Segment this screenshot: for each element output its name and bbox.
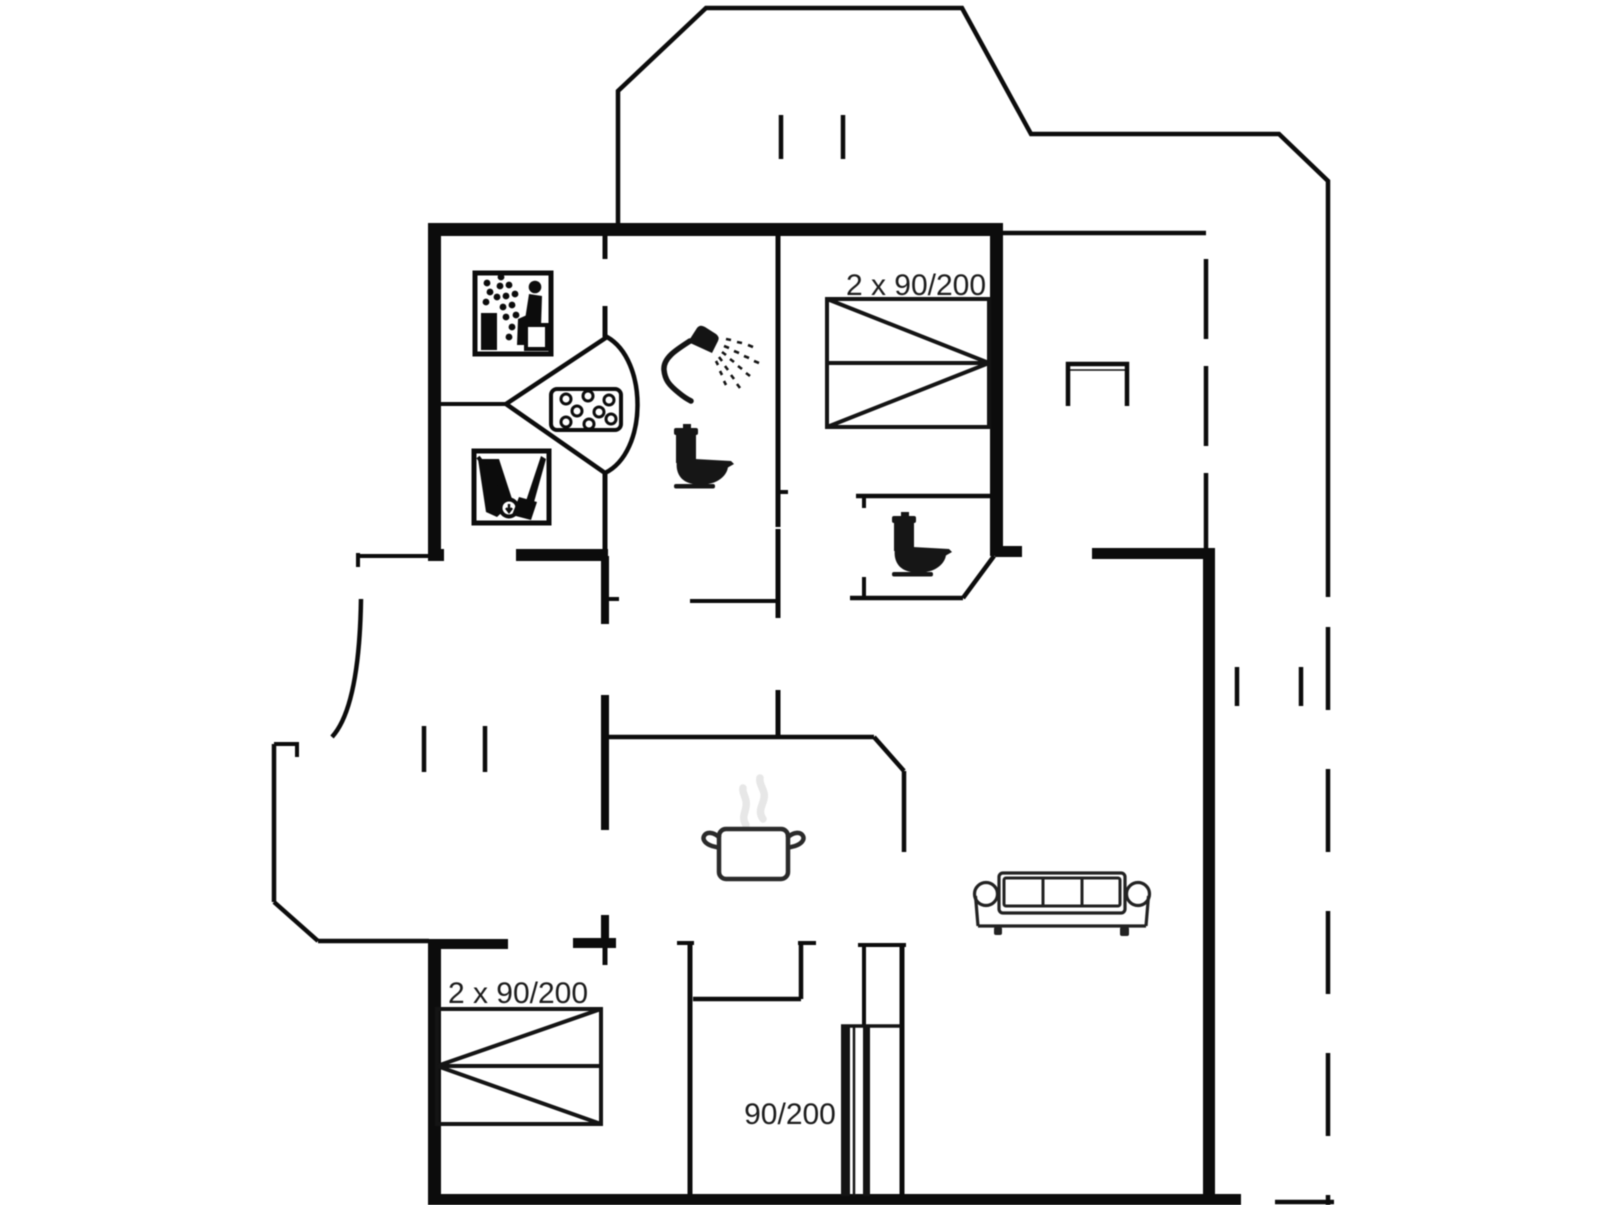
svg-text:2 x 90/200: 2 x 90/200	[448, 977, 588, 1010]
svg-text:90/200: 90/200	[744, 1098, 836, 1131]
svg-text:2 x 90/200: 2 x 90/200	[846, 269, 986, 302]
